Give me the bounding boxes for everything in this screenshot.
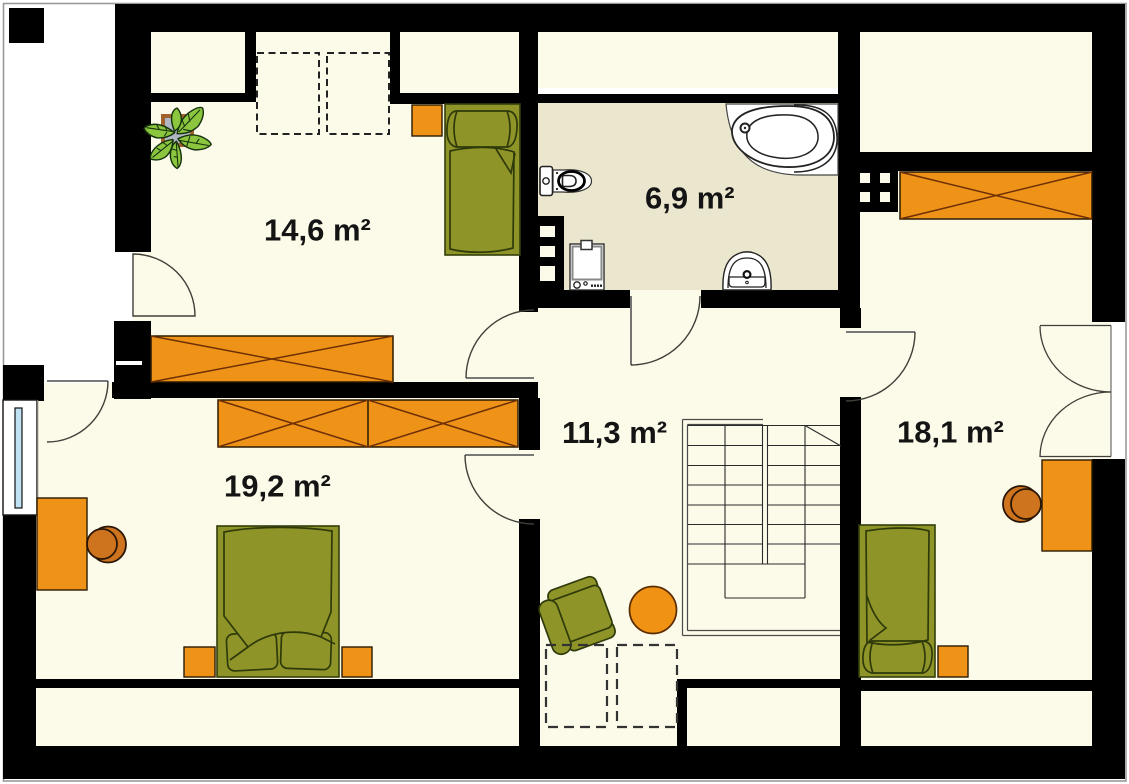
svg-text:19,2 m²: 19,2 m² xyxy=(224,469,331,504)
svg-text:14,6 m²: 14,6 m² xyxy=(264,213,371,248)
svg-text:11,3 m²: 11,3 m² xyxy=(562,415,667,450)
svg-text:6,9 m²: 6,9 m² xyxy=(645,181,735,216)
svg-text:18,1 m²: 18,1 m² xyxy=(897,415,1004,450)
